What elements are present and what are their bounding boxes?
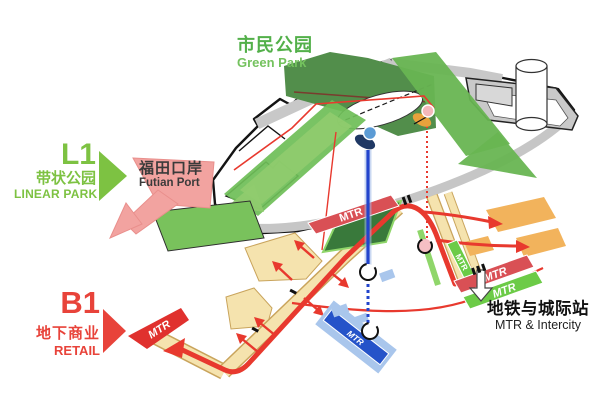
green-park-label-en: Green Park	[237, 56, 313, 70]
station-label-en: MTR & Intercity	[478, 319, 598, 332]
node-icon-intercity	[418, 239, 432, 253]
futian-port-label-zh: 福田口岸	[139, 161, 203, 177]
linear-park-pointer	[99, 151, 127, 201]
green-park-label-zh: 市民公园	[237, 36, 313, 55]
retail-label-en: RETAIL	[24, 344, 100, 358]
futian-port-label-en: Futian Port	[139, 177, 203, 189]
mtr-platform-blue: MTR	[315, 269, 397, 374]
linear-park-label-en: LINEAR PARK	[14, 188, 96, 201]
linear-park-label: L1 带状公园 LINEAR PARK	[14, 141, 96, 201]
retail-block-large	[245, 233, 322, 281]
intercity-platform-2	[516, 228, 566, 257]
axonometric-transit-diagram: MTR MTR MTR MTR MTR	[0, 0, 613, 409]
node-icon-b1	[360, 264, 376, 280]
linear-park-label-zh: 带状公园	[14, 171, 96, 187]
retail-label-zh: 地下商业	[24, 326, 100, 342]
station-label: 地铁与城际站 MTR & Intercity	[478, 301, 598, 332]
node-icon-platform	[362, 323, 378, 339]
retail-pointer	[103, 309, 126, 353]
tower-building	[516, 60, 547, 131]
b1-level-code: B1	[24, 288, 100, 317]
retail-label: B1 地下商业 RETAIL	[24, 288, 100, 358]
intercity-platform-1	[486, 197, 556, 232]
station-label-zh: 地铁与城际站	[478, 301, 598, 318]
green-park-label: 市民公园 Green Park	[237, 36, 313, 70]
futian-port-label: 福田口岸 Futian Port	[139, 161, 203, 189]
l1-level-code: L1	[14, 141, 96, 170]
mtr-bar-right-green-label: MTR	[491, 281, 518, 300]
